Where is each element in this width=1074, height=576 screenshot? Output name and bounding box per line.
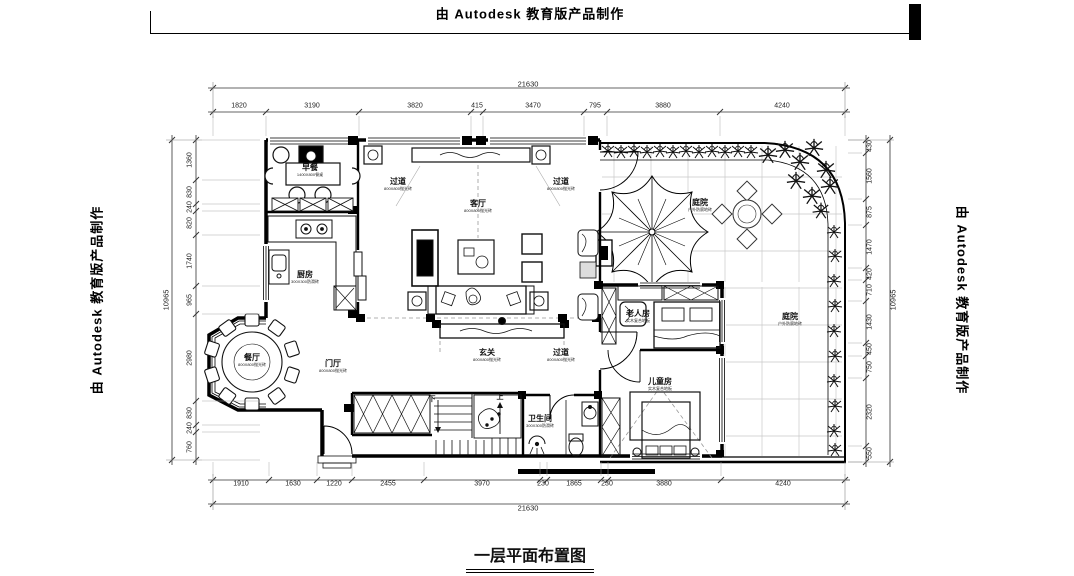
dimension-value: 710 [867, 284, 874, 296]
dimension-value: 550 [867, 447, 874, 459]
living-room-furniture [364, 146, 560, 314]
stair-direction-label-1: 上 [497, 392, 504, 402]
dimension-value: 430 [867, 140, 874, 152]
umbrella-icon [596, 176, 708, 288]
dimension-value: 2980 [187, 350, 194, 366]
dimension-value: 420 [867, 268, 874, 280]
dimension-value: 3970 [474, 481, 490, 488]
children-room-furniture [602, 392, 700, 458]
dimension-value: 965 [187, 294, 194, 306]
dimension-value: 3470 [525, 103, 541, 110]
dimension-value: 240 [187, 201, 194, 213]
dining-table-set [204, 314, 300, 410]
dimension-value: 4240 [775, 481, 791, 488]
stair-direction-label-0: 下 [429, 394, 436, 404]
entry-step [318, 456, 356, 468]
dimension-value: 1560 [867, 168, 874, 184]
dimension-value: 4240 [774, 103, 790, 110]
dimension-value: 875 [867, 206, 874, 218]
dimension-value: 1430 [867, 314, 874, 330]
dimension-value: 21630 [518, 81, 539, 88]
breakfast-set [265, 146, 360, 203]
dimension-value: 240 [187, 422, 194, 434]
dimension-value: 2455 [380, 481, 396, 488]
dimension-value: 3880 [656, 481, 672, 488]
dimension-value: 230 [537, 481, 549, 488]
drawing-title: 一层平面布置图 [466, 542, 594, 573]
bathroom-fixtures [529, 400, 598, 456]
passage-armchairs [578, 230, 598, 320]
dimension-value: 1740 [187, 253, 194, 269]
entry-console [440, 318, 564, 339]
dimension-value: 230 [601, 481, 613, 488]
dimension-value: 21630 [518, 505, 539, 512]
dimension-value: 1865 [566, 481, 582, 488]
dimension-value: 760 [187, 441, 194, 453]
elderly-room-furniture [602, 286, 720, 348]
dimension-value: 795 [589, 103, 601, 110]
dimension-value: 1820 [231, 103, 247, 110]
dimension-value: 10965 [890, 290, 897, 311]
dimension-value: 10965 [163, 290, 170, 311]
kitchen-wall-cabinets [272, 198, 353, 211]
dimension-value: 1910 [233, 481, 249, 488]
patio-table-set [712, 181, 782, 249]
dimension-value: 450 [867, 343, 874, 355]
dimension-value: 3820 [407, 103, 423, 110]
dimension-value: 3190 [304, 103, 320, 110]
dimension-value: 830 [187, 186, 194, 198]
dimension-value: 820 [187, 217, 194, 229]
dimension-value: 1630 [285, 481, 301, 488]
dimension-value: 830 [187, 407, 194, 419]
kitchen-fixtures [268, 216, 366, 310]
floorplan-sheet: 由 Autodesk 教育版产品制作 由 Autodesk 教育版产品制作 由 … [0, 0, 1074, 576]
dimension-value: 415 [471, 103, 483, 110]
dimension-value: 750 [867, 361, 874, 373]
dimension-value: 1220 [326, 481, 342, 488]
dimension-value: 1360 [187, 152, 194, 168]
dimension-value: 3880 [655, 103, 671, 110]
dimension-value: 2320 [867, 404, 874, 420]
stairs [354, 393, 521, 456]
dimension-value: 1470 [867, 239, 874, 255]
